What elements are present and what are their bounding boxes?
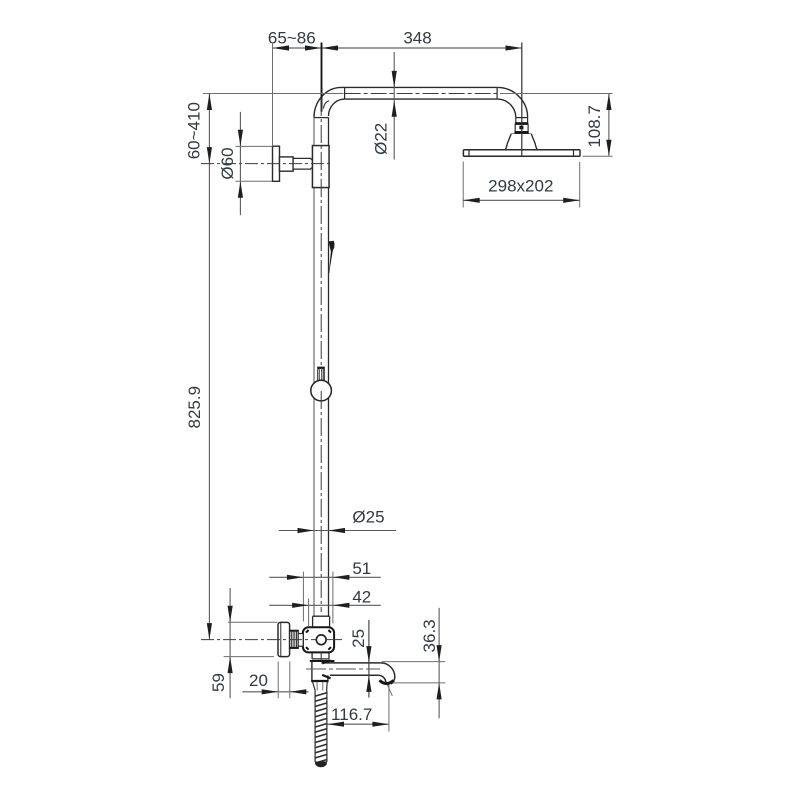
svg-text:36.3: 36.3 [420,619,439,652]
svg-text:825.9: 825.9 [185,386,204,429]
svg-text:20: 20 [249,671,268,690]
svg-text:108.7: 108.7 [585,105,604,148]
svg-text:59: 59 [209,673,228,692]
svg-text:298x202: 298x202 [488,176,553,195]
svg-text:25: 25 [349,629,368,648]
svg-text:Ø60: Ø60 [218,147,237,179]
svg-text:Ø22: Ø22 [372,123,391,155]
svg-text:51: 51 [352,559,371,578]
svg-text:60~410: 60~410 [185,102,204,159]
svg-text:42: 42 [352,587,371,606]
svg-text:65~86: 65~86 [268,29,316,48]
svg-text:116.7: 116.7 [331,705,372,724]
svg-text:348: 348 [403,29,431,48]
svg-text:Ø25: Ø25 [352,508,384,527]
